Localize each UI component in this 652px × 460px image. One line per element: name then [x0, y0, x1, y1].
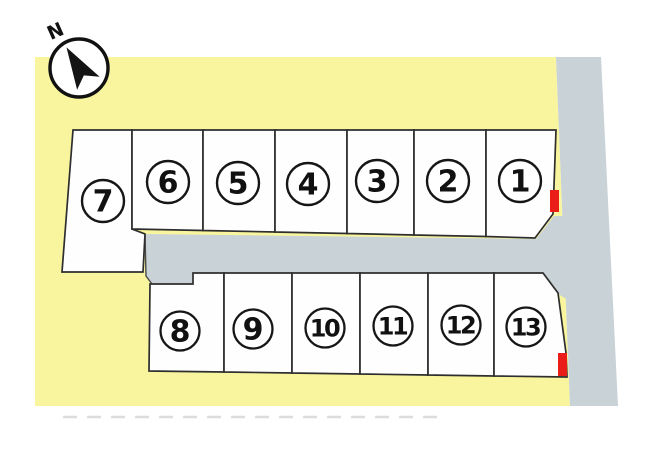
red-marker-lot1 [550, 190, 559, 212]
lot-2-badge-label: 2 [438, 165, 459, 200]
lot-5-badge: 5 [217, 162, 259, 204]
lot-8-badge-label: 8 [170, 315, 191, 350]
lot-10-badge-label: 10 [310, 315, 340, 343]
lot-11-badge: 11 [374, 307, 413, 346]
lot-8-badge: 8 [161, 312, 200, 351]
lot-12-badge: 12 [442, 306, 481, 345]
lot-5-badge-label: 5 [228, 167, 249, 202]
site-plan-canvas: 7 6 5 4 3 2 1 8 [0, 0, 652, 460]
lot-10-badge: 10 [306, 309, 345, 348]
lot-2-badge: 2 [427, 160, 469, 202]
lot-1-badge-label: 1 [510, 165, 531, 200]
lot-4-badge-label: 4 [298, 168, 319, 203]
lot-6-badge-label: 6 [158, 166, 179, 201]
lot-7-badge: 7 [82, 180, 124, 222]
lot-4-badge: 4 [287, 163, 329, 205]
lot-9-badge-label: 9 [243, 313, 264, 348]
lot-map-drawing: 7 6 5 4 3 2 1 8 [0, 0, 652, 460]
lot-1-badge: 1 [499, 160, 541, 202]
lot-3-badge-label: 3 [367, 165, 388, 200]
lot-13-badge-label: 13 [511, 314, 540, 342]
lot-13-badge: 13 [507, 308, 546, 347]
lot-9-badge: 9 [234, 310, 273, 349]
lot-6-badge: 6 [147, 161, 189, 203]
lot-3-badge: 3 [356, 160, 398, 202]
lot-12-badge-label: 12 [446, 312, 475, 340]
red-marker-lot13 [558, 353, 567, 376]
lot-11-badge-label: 11 [378, 313, 408, 341]
compass-north-label: N [44, 18, 67, 45]
lot-7-badge-label: 7 [93, 185, 114, 220]
